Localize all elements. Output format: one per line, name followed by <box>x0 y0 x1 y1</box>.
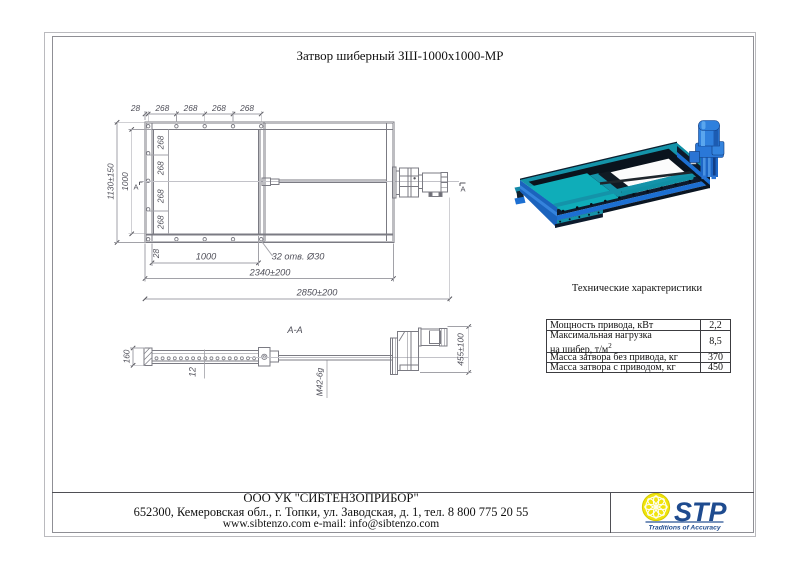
svg-text:2850±200: 2850±200 <box>296 288 339 298</box>
svg-text:1000: 1000 <box>196 252 217 262</box>
svg-text:12: 12 <box>188 367 198 377</box>
svg-text:268: 268 <box>211 103 226 113</box>
svg-text:268: 268 <box>183 103 198 113</box>
svg-text:М42-6g: М42-6g <box>315 367 325 396</box>
svg-text:1000: 1000 <box>120 172 130 191</box>
svg-text:28: 28 <box>151 249 161 260</box>
svg-text:268: 268 <box>156 189 166 204</box>
svg-text:1130±150: 1130±150 <box>106 163 116 200</box>
svg-text:268: 268 <box>239 103 254 113</box>
svg-text:А: А <box>133 183 138 192</box>
svg-text:32 отв. Ø30: 32 отв. Ø30 <box>272 252 326 262</box>
svg-text:160: 160 <box>122 349 132 363</box>
svg-text:268: 268 <box>154 103 169 113</box>
svg-text:28: 28 <box>130 103 141 113</box>
svg-text:268: 268 <box>156 215 166 230</box>
svg-text:2340±200: 2340±200 <box>249 267 292 277</box>
svg-text:А-А: А-А <box>286 325 302 335</box>
svg-text:268: 268 <box>156 135 166 150</box>
svg-text:Traditions of Accuracy: Traditions of Accuracy <box>648 524 720 531</box>
svg-text:455±100: 455±100 <box>456 333 466 366</box>
svg-text:268: 268 <box>156 161 166 176</box>
svg-text:А: А <box>460 185 465 194</box>
